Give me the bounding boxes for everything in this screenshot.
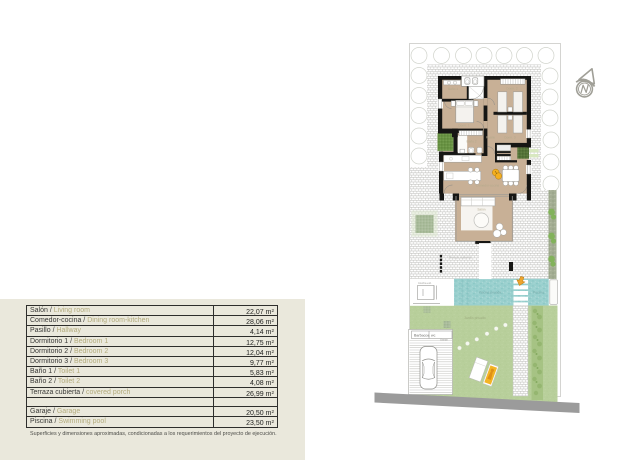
svg-text:Salón: Salón: [477, 208, 485, 212]
svg-text:Dorm. 1: Dorm. 1: [458, 124, 470, 128]
svg-text:Baño 2: Baño 2: [466, 140, 476, 144]
svg-text:Jardín privado: Jardín privado: [464, 316, 486, 320]
svg-text:Pasillo: Pasillo: [486, 136, 496, 140]
svg-text:Piscina privada: Piscina privada: [479, 291, 502, 295]
svg-text:Barbacoa: Barbacoa: [414, 333, 429, 337]
svg-text:Garaje: Garaje: [440, 339, 448, 342]
svg-text:Piscina: Piscina: [533, 291, 544, 295]
svg-text:Baño 1: Baño 1: [448, 87, 458, 91]
svg-text:Ducha ext.: Ducha ext.: [418, 281, 432, 285]
svg-text:Dorm. 3: Dorm. 3: [504, 136, 516, 140]
svg-text:wc: wc: [431, 333, 436, 337]
svg-text:Comedor-cocina: Comedor-cocina: [476, 184, 500, 188]
svg-text:Terraza cubierta: Terraza cubierta: [449, 255, 472, 259]
svg-text:Dorm. 2: Dorm. 2: [506, 87, 518, 91]
